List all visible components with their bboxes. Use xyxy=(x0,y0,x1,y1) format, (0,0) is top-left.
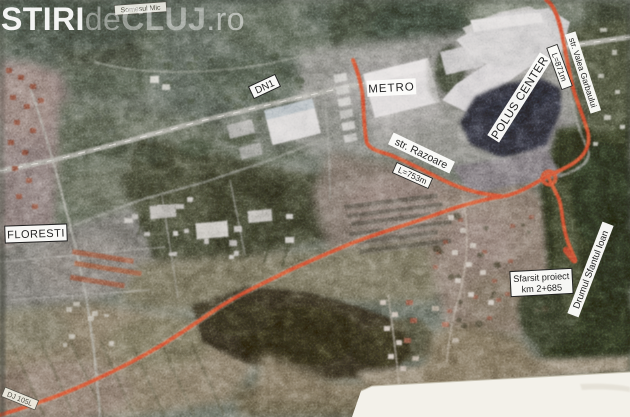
svg-text:FLORESTI: FLORESTI xyxy=(7,227,65,241)
svg-text:STIRIdeCLUJ.ro: STIRIdeCLUJ.ro xyxy=(1,1,245,37)
svg-text:METRO: METRO xyxy=(368,81,415,95)
svg-text:km 2+685: km 2+685 xyxy=(521,282,562,294)
